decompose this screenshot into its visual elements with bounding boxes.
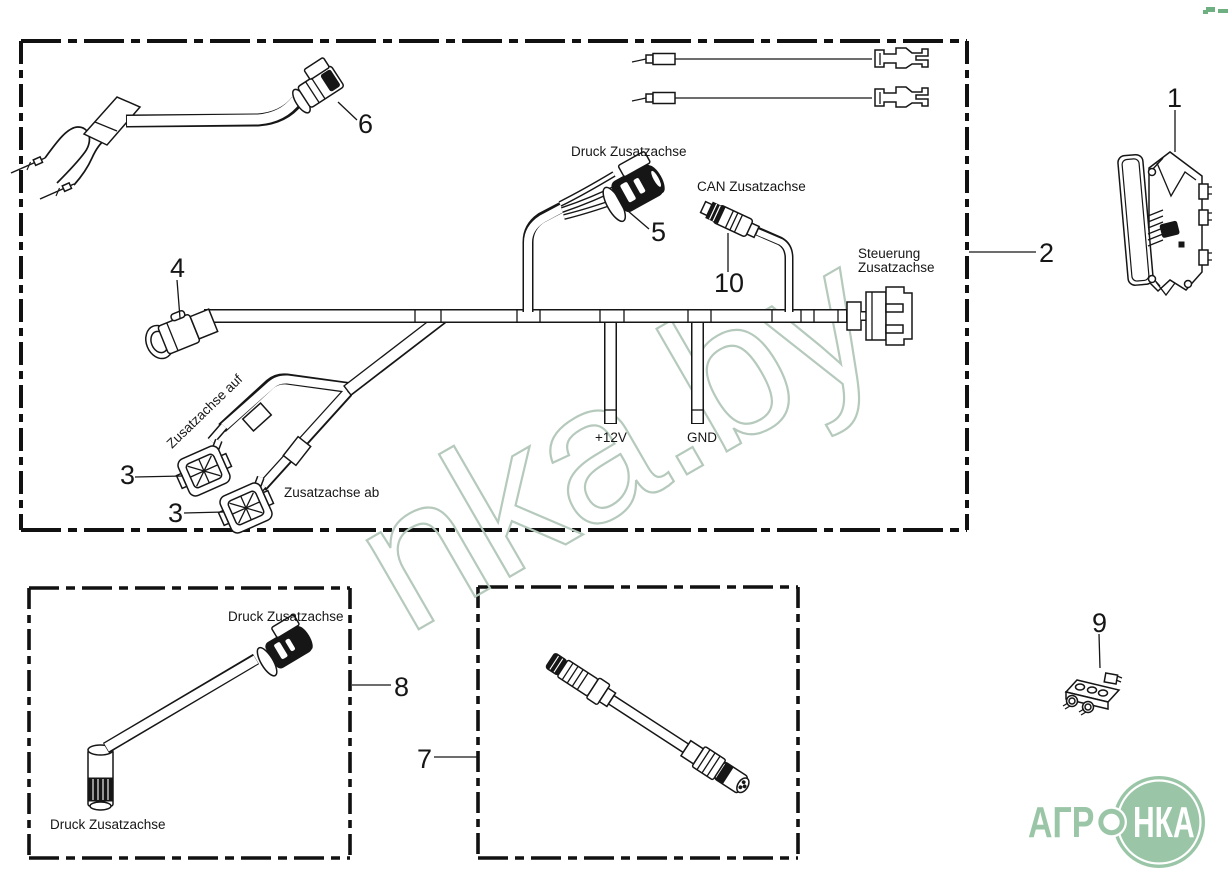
- svg-text:Druck Zusatzachse: Druck Zusatzachse: [228, 609, 344, 624]
- svg-text:1: 1: [1167, 83, 1182, 113]
- svg-text:Steuerung: Steuerung: [858, 246, 920, 261]
- svg-text:10: 10: [714, 268, 744, 298]
- svg-text:7: 7: [417, 744, 432, 774]
- svg-text:АГР: АГР: [1028, 799, 1094, 847]
- svg-text:Zusatzachse ab: Zusatzachse ab: [284, 485, 379, 500]
- svg-text:2: 2: [1039, 238, 1054, 268]
- svg-text:Druck Zusatzachse: Druck Zusatzachse: [571, 144, 687, 159]
- svg-text:НКА: НКА: [1133, 797, 1195, 846]
- svg-text:8: 8: [394, 672, 409, 702]
- svg-text:9: 9: [1092, 608, 1107, 638]
- svg-text:4: 4: [170, 253, 185, 283]
- svg-text:Zusatzachse: Zusatzachse: [858, 260, 935, 275]
- svg-text:3: 3: [168, 498, 183, 528]
- svg-text:GND: GND: [687, 430, 717, 445]
- svg-text:5: 5: [651, 217, 666, 247]
- svg-text:3: 3: [120, 460, 135, 490]
- svg-text:CAN Zusatzachse: CAN Zusatzachse: [697, 179, 806, 194]
- svg-text:+12V: +12V: [595, 430, 627, 445]
- svg-text:Druck Zusatzachse: Druck Zusatzachse: [50, 817, 166, 832]
- svg-text:6: 6: [358, 109, 373, 139]
